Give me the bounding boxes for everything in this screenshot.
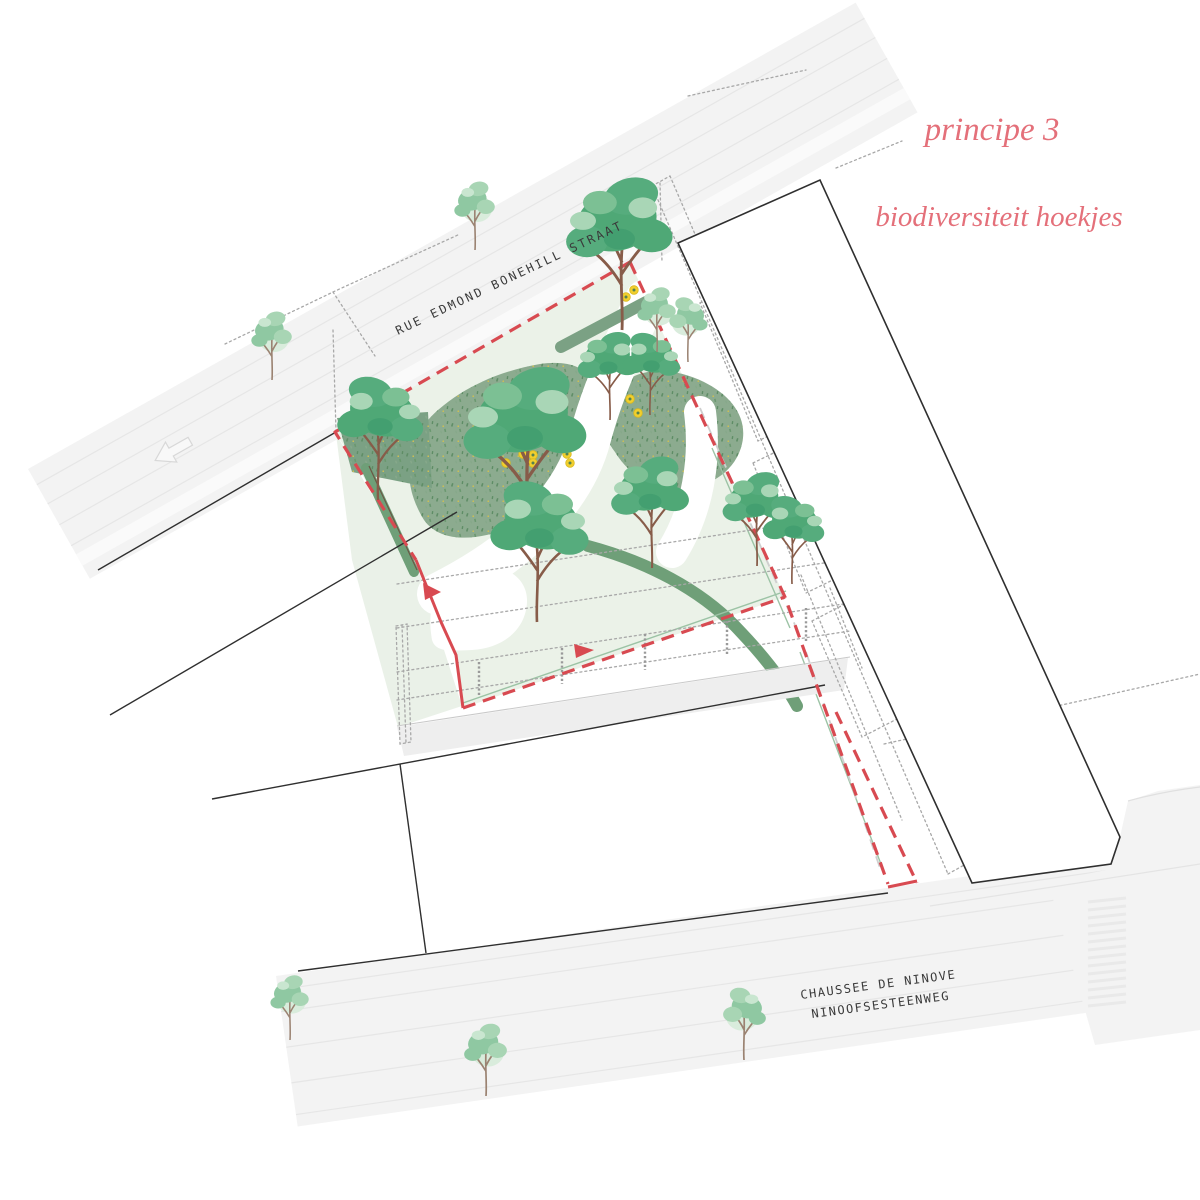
street-tree — [669, 296, 707, 362]
diagram-title: principe 3 — [923, 112, 1060, 148]
site-plan-canvas: RUE EDMOND BONEHILL STRAAT CHAUSSEE DE N… — [0, 0, 1200, 1200]
site-plan-svg: RUE EDMOND BONEHILL STRAAT CHAUSSEE DE N… — [0, 0, 1200, 1200]
diagram-subtitle: biodiversiteit hoekjes — [875, 201, 1122, 233]
